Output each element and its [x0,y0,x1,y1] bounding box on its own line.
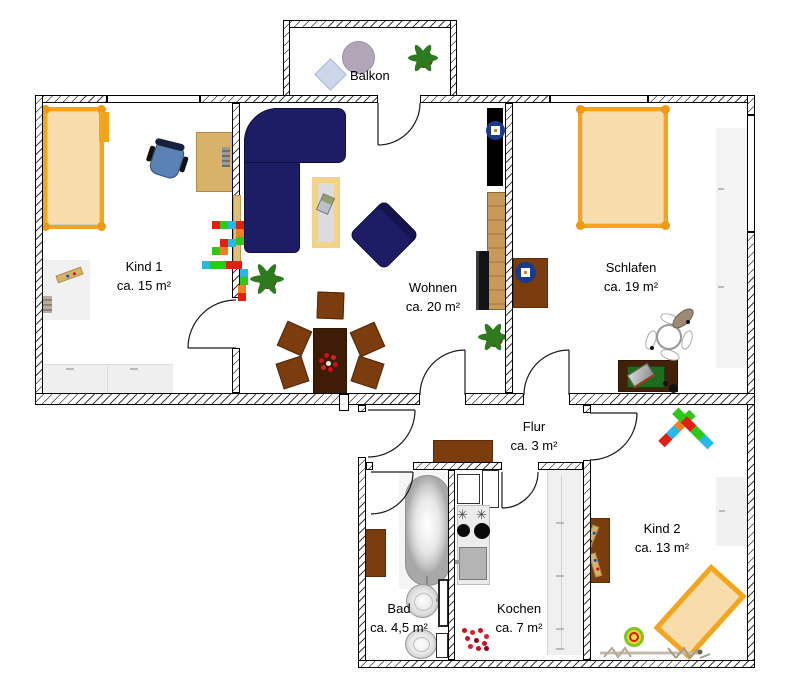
room-area: ca. 3 m² [494,436,574,455]
magazine [316,193,335,215]
wall [448,470,455,660]
room-name: Kind 2 [616,519,708,538]
room-label-balkon: Balkon [350,66,410,85]
wall [358,405,366,412]
desk-chair-schlafen [648,316,692,360]
wardrobe-kind2 [716,477,748,546]
wall [35,95,107,103]
room-area: ca. 13 m² [616,538,708,557]
desk-kind1 [196,132,233,192]
wall [583,405,591,413]
wall [413,462,502,470]
room-name: Bad [358,599,440,618]
door-balkon [378,103,420,145]
room-label-flur: Flur ca. 3 m² [494,417,574,455]
coffee-table [312,177,340,248]
bed-shelf-kind1 [99,112,109,142]
stool-schlafen [515,262,536,283]
wall [283,20,457,28]
room-area: ca. 20 m² [383,297,483,316]
armchair [349,200,420,271]
burner-icon: ✳ [476,507,487,523]
office-chair-kind1 [142,134,191,186]
low-shelf-kind1 [42,364,173,393]
dining-chair [277,321,313,357]
room-name: Kind 1 [94,257,194,276]
room-label-schlafen: Schlafen ca. 19 m² [581,258,681,296]
wall [35,393,420,405]
ball-toy [624,627,644,647]
wall [747,95,755,115]
speaker-stool [486,121,505,140]
door-kochen [502,472,538,508]
potted-plant [408,43,438,73]
dining-table [313,328,347,396]
bed-kind1 [43,107,104,229]
window-schlafen [550,95,648,103]
wall [569,393,755,405]
room-label-kind2: Kind 2 ca. 13 m² [616,519,708,557]
room-label-kind1: Kind 1 ca. 15 m² [94,257,194,295]
room-area: ca. 19 m² [581,277,681,296]
potted-plant [250,262,284,296]
bed-kind2 [653,564,746,660]
room-name: Kochen [478,599,560,618]
wall [648,95,755,103]
room-label-bad: Bad ca. 4,5 m² [358,599,440,637]
door-entry [368,410,415,457]
kitchen-flowers [462,628,467,633]
dining-chair [317,292,345,320]
tv-board [487,108,503,186]
bathtub [405,475,450,586]
wall-stub-chimney [339,394,349,411]
door-kind1 [188,300,236,348]
burner-icon: ✳ [457,507,468,523]
wall [232,348,240,393]
wall [283,20,290,96]
wall [747,232,755,668]
fridge [457,474,480,504]
dining-chair [350,355,384,389]
window-schlafen-east [747,115,755,232]
wall [366,462,373,470]
door-wohnen-flur [420,350,465,395]
room-name: Balkon [350,66,410,85]
burner-plate [457,524,470,537]
wall [538,462,583,470]
desk-schlafen [618,360,678,392]
wall [420,95,550,103]
wall [200,95,378,103]
toy-blocks-kind1 [202,221,254,301]
wall [505,103,513,393]
washing-machine [482,470,499,508]
door-schlafen-flur [524,350,569,395]
corner-sofa-arm [244,108,346,163]
sideboard-flur [433,440,493,463]
dining-chair [275,355,309,389]
burner-plate [474,523,490,539]
wall [450,20,457,96]
wall [358,660,755,668]
room-label-wohnen: Wohnen ca. 20 m² [383,278,483,316]
double-bed-schlafen [578,107,668,228]
room-area: ca. 7 m² [478,618,560,637]
window-kind1 [107,95,200,103]
room-name: Flur [494,417,574,436]
room-area: ca. 4,5 m² [358,618,440,637]
table-flowers [324,353,329,358]
room-name: Wohnen [383,278,483,297]
wardrobe-schlafen [716,128,747,368]
balcony-cushion [314,58,347,91]
potted-plant [478,322,508,352]
room-area: ca. 15 m² [94,276,194,295]
door-kind2 [590,413,637,460]
floorplan: ✳ ✳ [0,0,800,698]
wall [35,95,43,405]
dining-chair [350,322,386,358]
room-name: Schlafen [581,258,681,277]
cabinet-bad [363,529,386,577]
kitchen-sink [459,547,487,580]
wall [583,460,591,660]
wall [465,393,524,405]
room-label-kochen: Kochen ca. 7 m² [478,599,560,637]
